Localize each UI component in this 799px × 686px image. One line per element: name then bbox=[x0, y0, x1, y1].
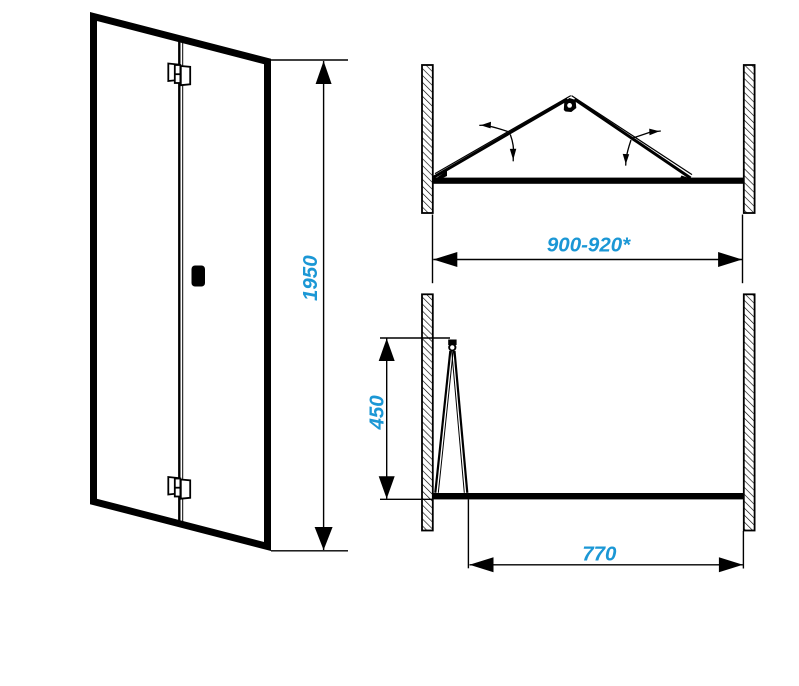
svg-text:1950: 1950 bbox=[299, 255, 322, 301]
svg-text:450: 450 bbox=[365, 395, 388, 431]
svg-text:900-920*: 900-920* bbox=[547, 234, 631, 257]
svg-text:770: 770 bbox=[582, 543, 617, 566]
